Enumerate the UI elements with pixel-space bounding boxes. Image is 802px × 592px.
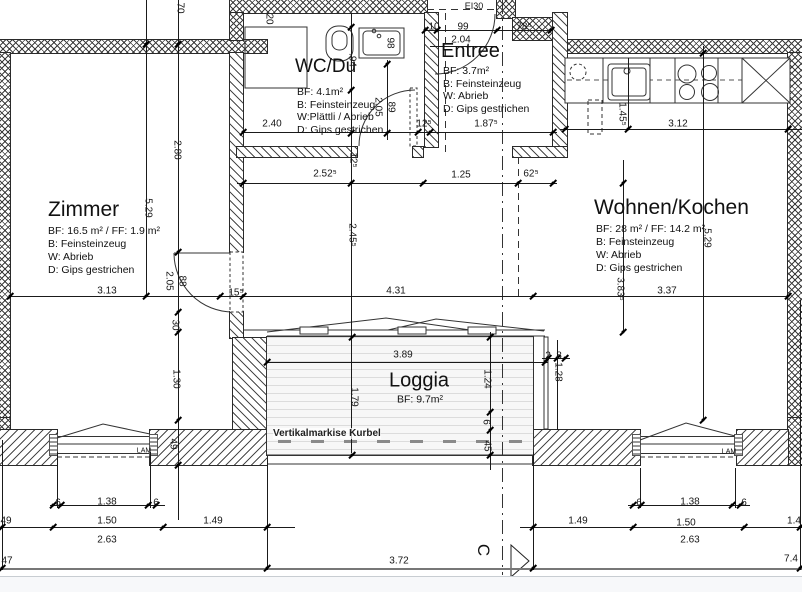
markise-label: Vertikalmarkise Kurbel: [273, 428, 381, 439]
room-details-wc: BF: 4.1m² B: Feinsteinzeug W:Plättli / A…: [297, 86, 383, 136]
window-opening-symbol: [640, 423, 735, 440]
dimension-tick-dot: [552, 182, 555, 185]
dimension-label: 6: [153, 498, 159, 509]
line: [520, 527, 802, 528]
dimension-tick-dot: [9, 295, 12, 298]
dimension-tick-dot: [177, 419, 180, 422]
room-details-zimmer: BF: 16.5 m² / FF: 1.9 m² B: Feinsteinzeu…: [48, 225, 160, 277]
line: [237, 183, 557, 184]
dimension-label: 1.49: [203, 516, 222, 527]
dimension-tick-dot: [632, 526, 635, 529]
dimension-tick-dot: [351, 454, 354, 457]
dimension-tick-dot: [702, 52, 705, 55]
wc-door-leaf: [410, 88, 417, 146]
dimension-tick-dot: [386, 63, 389, 66]
dimension-tick-dot: [489, 411, 492, 414]
dimension-label: 89: [386, 101, 397, 112]
dimension-tick-dot: [177, 464, 180, 467]
dimension-label: 62⁵: [523, 169, 538, 180]
dimension-label: 1.30: [171, 369, 182, 388]
dimension-label: 1.45⁵: [617, 102, 628, 126]
line: [243, 132, 557, 133]
dimension-tick-dot: [350, 182, 353, 185]
dimension-tick-dot: [147, 504, 150, 507]
dimension-label: 49: [168, 438, 179, 449]
dimension-tick-dot: [552, 131, 555, 134]
section-letter: C: [473, 544, 493, 556]
dimension-label: 6: [741, 498, 747, 509]
dimension-label: 1.87⁵: [474, 119, 498, 130]
dimension-label: 15⁵: [228, 288, 243, 299]
lam-label-left: LAM: [137, 448, 151, 455]
line: [425, 30, 553, 31]
dimension-tick-dot: [627, 128, 630, 131]
line: [0, 527, 295, 528]
dimension-tick-dot: [52, 526, 55, 529]
dimension-tick-dot: [351, 336, 354, 339]
dimension-tick-dot: [52, 504, 55, 507]
dimension-label: 1.28: [553, 362, 564, 381]
dimension-label: 1.38: [97, 497, 116, 508]
dimension-label: 3.72: [389, 556, 408, 567]
dimension-tick-dot: [787, 295, 790, 298]
section-marker-triangle: [511, 545, 529, 577]
dimension-label: 2: [545, 351, 551, 362]
dimension-tick-dot: [622, 182, 625, 185]
dimension-label: 1.38: [680, 497, 699, 508]
dimension-tick-dot: [177, 331, 180, 334]
dimension-tick-dot: [532, 567, 535, 570]
dimension-tick-dot: [489, 429, 492, 432]
lam-label-right: LAM: [722, 449, 736, 456]
window-opening-symbol: [57, 424, 150, 438]
room-details-wohnen: BF: 28 m² / FF: 14.2 m² B: Feinsteinzeug…: [596, 223, 705, 275]
dimension-label: 1.50: [97, 516, 116, 527]
room-details-entree: BF: 3.7m² B: Feinsteinzeug W: Abrieb D: …: [443, 65, 529, 115]
dimension-tick-dot: [564, 128, 567, 131]
dimension-tick-dot: [743, 526, 746, 529]
dimension-tick-dot: [799, 567, 802, 570]
dimension-tick-dot: [417, 131, 420, 134]
dimension-tick-dot: [219, 295, 222, 298]
floor-plan: 109978⁵2.043.122.4012⁵1.87⁵2.52⁵1.2562⁵3…: [0, 0, 802, 592]
line: [533, 452, 534, 570]
dimension-label: 10: [428, 22, 439, 33]
room-details-loggia: BF: 9.7m²: [397, 394, 443, 407]
dimension-tick-dot: [1, 567, 4, 570]
room-title-wohnen: Wohnen/Kochen: [594, 196, 749, 220]
dimension-label: 2.40: [262, 119, 281, 130]
dimension-tick-dot: [632, 504, 635, 507]
dimension-tick-dot: [787, 128, 790, 131]
room-title-loggia: Loggia: [389, 370, 449, 393]
dimension-tick-dot: [266, 526, 269, 529]
dimension-label: 2.80: [172, 140, 183, 159]
dimension-tick-dot: [429, 131, 432, 134]
dimension-tick-dot: [622, 331, 625, 334]
dimension-label: 1.24: [482, 369, 493, 388]
dimension-tick-dot: [162, 526, 165, 529]
dimension-label: 8: [556, 351, 562, 362]
dimension-tick-dot: [532, 526, 535, 529]
line: [387, 60, 388, 140]
dimension-label: 2.63: [680, 535, 699, 546]
dimension-label: 1.49: [568, 516, 587, 527]
dimension-label: 12⁵: [348, 152, 359, 167]
dimension-tick-dot: [145, 295, 148, 298]
dimension-label: 2.05: [164, 271, 175, 290]
dimension-label: 1.25: [451, 170, 470, 181]
dimension-tick-dot: [424, 29, 427, 32]
room-title-wc: WC/Du: [295, 56, 356, 78]
wc-sink-outline: [359, 28, 404, 58]
dimension-tick-dot: [517, 182, 520, 185]
dimension-label: 78⁵: [516, 22, 531, 33]
dimension-label: 3.37: [657, 286, 676, 297]
line: [800, 300, 801, 570]
dimension-tick-dot: [177, 311, 180, 314]
fire-rating-label: EI30: [465, 1, 484, 11]
dimension-tick-dot: [564, 357, 567, 360]
dimension-tick-dot: [145, 43, 148, 46]
line: [267, 362, 548, 363]
dimension-tick-dot: [532, 295, 535, 298]
dimension-label: 49: [0, 516, 11, 527]
dimension-tick-dot: [350, 26, 353, 29]
dimension-tick-dot: [489, 336, 492, 339]
page-bottom-strip: [0, 576, 802, 592]
dimension-label: 2.63: [97, 535, 116, 546]
dimension-label: 3.12: [668, 119, 687, 130]
dimension-tick-dot: [266, 361, 269, 364]
dimension-label: 5.29: [143, 198, 154, 217]
dimension-tick-dot: [550, 29, 553, 32]
dimension-label: 3.83⁵: [615, 277, 626, 301]
dimension-label: 1.4: [787, 516, 801, 527]
dimension-label: 6: [636, 498, 642, 509]
dimension-label: 1.50: [676, 518, 695, 529]
dimension-tick-dot: [422, 182, 425, 185]
dimension-tick-dot: [386, 132, 389, 135]
dimension-tick-dot: [489, 454, 492, 457]
dimension-label: 1.79: [349, 387, 360, 406]
dimension-label: 2.52⁵: [313, 169, 337, 180]
dimension-tick-dot: [702, 419, 705, 422]
dimension-label: 45: [482, 440, 493, 451]
line: [150, 452, 151, 508]
line: [628, 58, 629, 129]
dimension-label: 47: [1, 556, 12, 567]
dimension-label: 2.45⁵: [347, 223, 358, 247]
dimension-label: 6: [55, 498, 61, 509]
dimension-label: 30: [170, 319, 181, 330]
dimension-tick-dot: [177, 251, 180, 254]
room-title-zimmer: Zimmer: [48, 198, 119, 222]
dimension-label: 70: [175, 2, 186, 13]
dimension-tick-dot: [242, 182, 245, 185]
dimension-label: 98: [385, 37, 396, 48]
dimension-label: 99: [457, 22, 468, 33]
dimension-label: 4.31: [386, 286, 405, 297]
dimension-label: 3.89: [393, 350, 412, 361]
dimension-tick-dot: [496, 29, 499, 32]
room-title-entree: Entree: [441, 40, 500, 63]
dimension-label: 88: [177, 275, 188, 286]
dimension-tick-dot: [177, 43, 180, 46]
dimension-tick-dot: [266, 567, 269, 570]
line: [267, 460, 268, 570]
line: [0, 568, 802, 570]
dimension-tick-dot: [731, 504, 734, 507]
line: [2, 440, 3, 570]
dimension-label: 3.13: [97, 286, 116, 297]
dimension-label: 6: [481, 419, 492, 425]
zimmer-door-opening: [230, 252, 243, 312]
dimension-label: 12⁵: [416, 119, 431, 130]
dimension-label: 7.4: [784, 554, 798, 565]
dimension-tick-dot: [242, 131, 245, 134]
dimension-label: 20: [264, 13, 275, 24]
